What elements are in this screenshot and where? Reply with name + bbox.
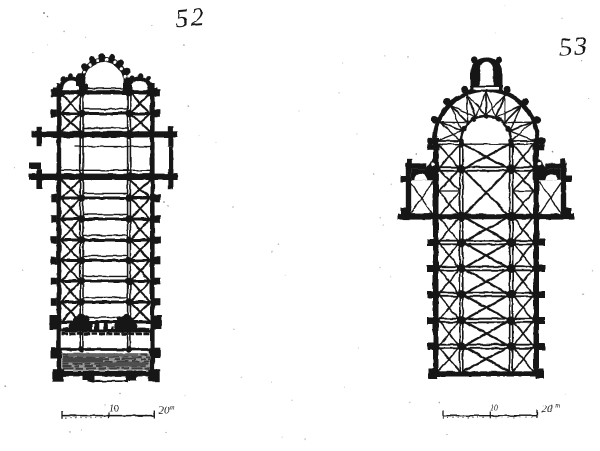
svg-text:10: 10 bbox=[490, 404, 498, 413]
svg-text:52: 52 bbox=[174, 2, 207, 34]
svg-text:10: 10 bbox=[109, 404, 119, 415]
svg-text:53: 53 bbox=[558, 31, 590, 63]
